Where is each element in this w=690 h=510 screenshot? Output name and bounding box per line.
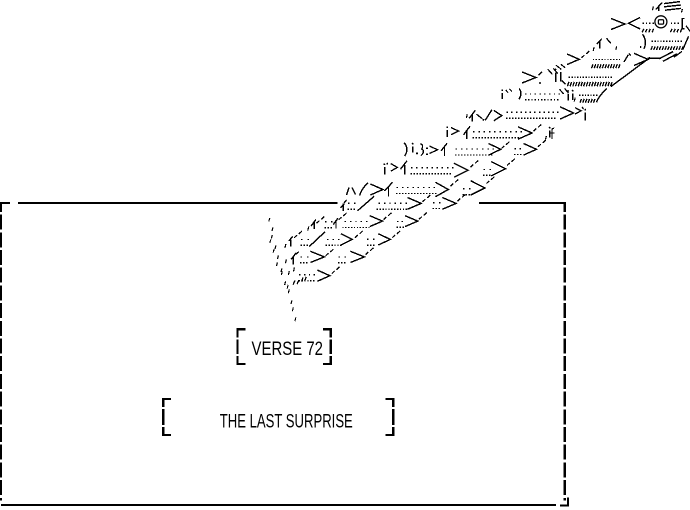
svg-text:VERSE 72: VERSE 72: [252, 339, 324, 360]
svg-text:THE LAST SURPRISE: THE LAST SURPRISE: [220, 412, 353, 433]
